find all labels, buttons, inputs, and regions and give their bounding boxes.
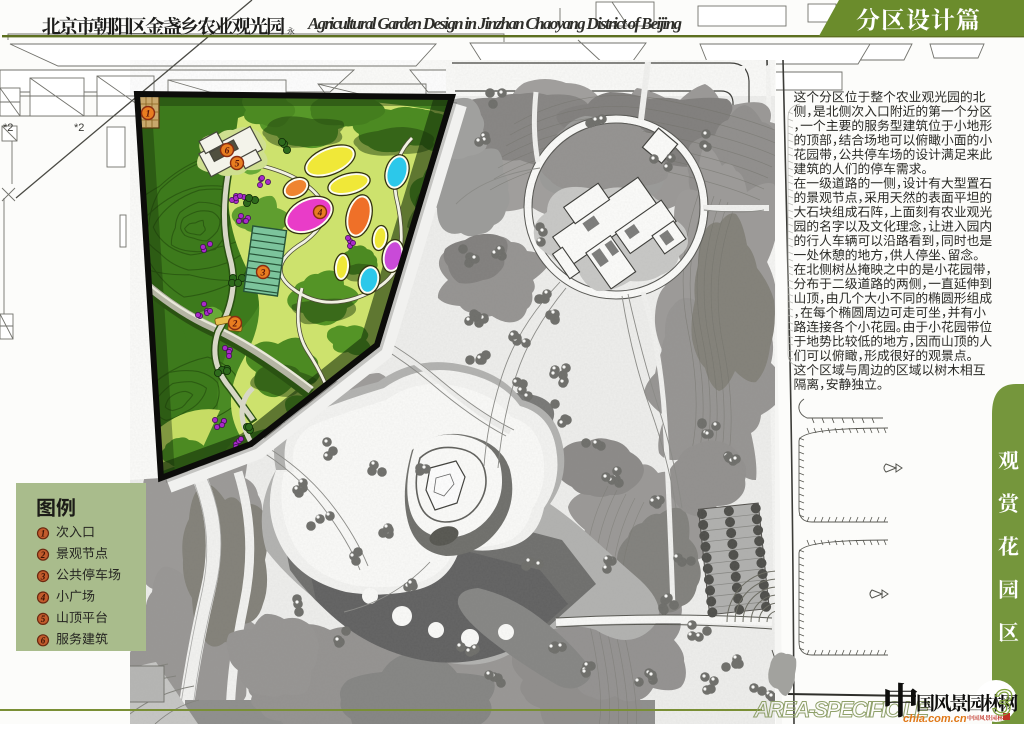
svg-text:4: 4	[317, 208, 323, 218]
svg-text:*2: *2	[3, 122, 13, 134]
svg-text:5: 5	[41, 614, 46, 624]
svg-text:1: 1	[146, 109, 151, 119]
svg-text:2: 2	[232, 319, 238, 329]
svg-text:3: 3	[40, 571, 46, 581]
svg-text:3: 3	[992, 682, 1012, 723]
svg-text:2: 2	[40, 550, 46, 560]
svg-text:chla.com.cn: chla.com.cn	[903, 713, 967, 724]
svg-text:4: 4	[40, 593, 46, 603]
svg-text:5: 5	[235, 159, 240, 169]
svg-text:Agricultural Garden Design in: Agricultural Garden Design in Jinzhan Ch…	[307, 14, 683, 33]
svg-text:6: 6	[41, 636, 46, 646]
svg-text:*2: *2	[74, 122, 84, 134]
svg-text:3: 3	[260, 268, 266, 278]
svg-text:6: 6	[225, 146, 230, 156]
svg-text:1: 1	[41, 529, 46, 539]
